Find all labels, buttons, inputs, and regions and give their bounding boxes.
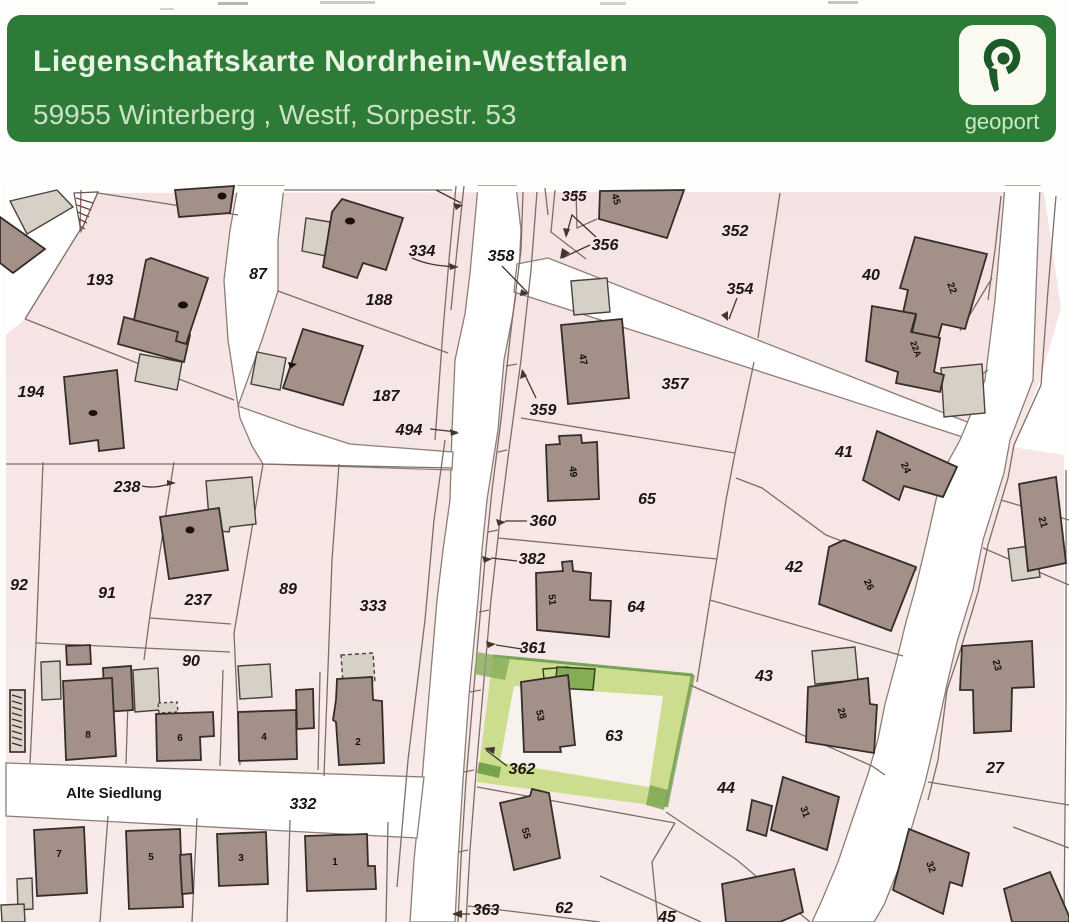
svg-text:45: 45 <box>657 909 677 922</box>
svg-text:363: 363 <box>473 902 500 919</box>
svg-text:2: 2 <box>355 737 361 748</box>
svg-text:194: 194 <box>18 384 45 401</box>
svg-text:6: 6 <box>177 733 183 744</box>
svg-text:352: 352 <box>722 223 749 240</box>
svg-text:1: 1 <box>332 857 338 868</box>
svg-text:27: 27 <box>985 760 1005 777</box>
svg-text:358: 358 <box>488 248 515 265</box>
svg-text:62: 62 <box>555 900 573 917</box>
svg-text:42: 42 <box>784 559 803 576</box>
svg-text:354: 354 <box>727 281 754 298</box>
svg-text:89: 89 <box>279 581 297 598</box>
svg-text:356: 356 <box>592 237 619 254</box>
svg-text:334: 334 <box>409 243 436 260</box>
svg-text:64: 64 <box>627 599 645 616</box>
svg-text:5: 5 <box>148 852 154 863</box>
svg-text:65: 65 <box>638 491 657 508</box>
svg-text:361: 361 <box>520 640 547 657</box>
svg-text:237: 237 <box>184 592 213 609</box>
svg-text:43: 43 <box>754 668 773 685</box>
svg-text:360: 360 <box>530 513 557 530</box>
svg-text:44: 44 <box>716 780 735 797</box>
svg-text:8: 8 <box>85 730 91 741</box>
svg-text:332: 332 <box>290 796 317 813</box>
svg-text:87: 87 <box>249 266 268 283</box>
svg-text:187: 187 <box>373 388 401 405</box>
svg-text:193: 193 <box>87 272 114 289</box>
svg-text:494: 494 <box>395 422 423 439</box>
svg-text:63: 63 <box>605 728 623 745</box>
svg-text:362: 362 <box>509 761 536 778</box>
svg-text:3: 3 <box>238 853 244 864</box>
svg-text:49: 49 <box>567 466 579 478</box>
svg-text:4: 4 <box>261 732 267 743</box>
svg-text:41: 41 <box>834 444 853 461</box>
svg-text:188: 188 <box>366 292 393 309</box>
svg-text:359: 359 <box>530 402 557 419</box>
svg-text:333: 333 <box>360 598 387 615</box>
svg-text:91: 91 <box>98 585 116 602</box>
svg-text:40: 40 <box>861 267 880 284</box>
svg-text:7: 7 <box>56 849 62 860</box>
svg-text:Alte Siedlung: Alte Siedlung <box>66 785 162 802</box>
svg-text:238: 238 <box>113 479 141 496</box>
svg-text:90: 90 <box>182 653 200 670</box>
svg-text:355: 355 <box>561 188 587 205</box>
svg-text:92: 92 <box>10 577 28 594</box>
svg-text:357: 357 <box>662 376 690 393</box>
svg-text:382: 382 <box>519 551 546 568</box>
svg-text:51: 51 <box>546 594 558 606</box>
